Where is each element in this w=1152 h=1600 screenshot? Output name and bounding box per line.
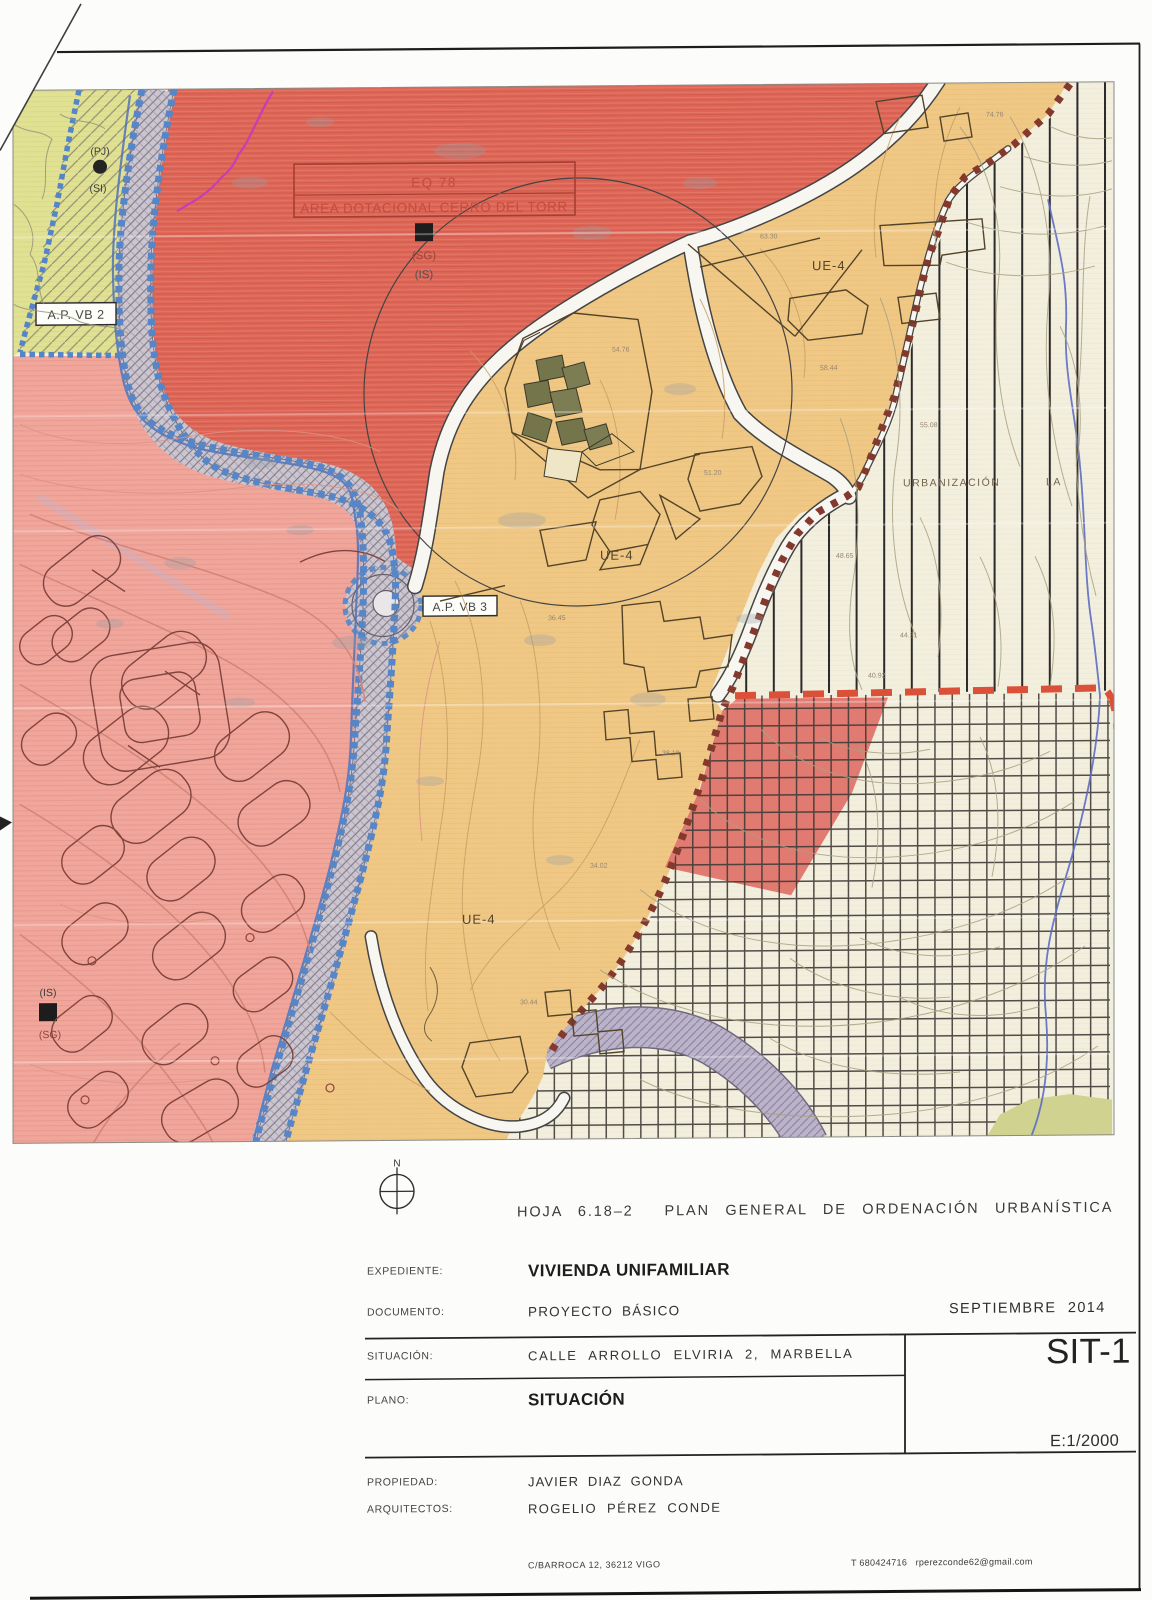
svg-text:EXPEDIENTE:: EXPEDIENTE: — [367, 1265, 443, 1278]
svg-text:PROPIEDAD:: PROPIEDAD: — [367, 1476, 438, 1489]
svg-text:ROGELIO PÉREZ CONDE: ROGELIO PÉREZ CONDE — [528, 1500, 721, 1517]
svg-text:VIVIENDA UNIFAMILIAR: VIVIENDA UNIFAMILIAR — [528, 1260, 730, 1281]
svg-text:C/BARROCA 12, 36212 VIGO: C/BARROCA 12, 36212 VIGO — [528, 1559, 661, 1570]
svg-text:SEPTIEMBRE 2014: SEPTIEMBRE 2014 — [949, 1300, 1106, 1317]
svg-text:PLANO:: PLANO: — [367, 1394, 409, 1406]
svg-text:ARQUITECTOS:: ARQUITECTOS: — [367, 1503, 453, 1516]
svg-text:SITUACIÓN: SITUACIÓN — [528, 1390, 625, 1410]
svg-text:N: N — [393, 1158, 400, 1169]
svg-text:E:1/2000: E:1/2000 — [1050, 1432, 1119, 1451]
svg-text:T 680424716 rperezconde62@gm: T 680424716 rperezconde62@gmail.com — [851, 1556, 1033, 1567]
svg-text:SIT-1: SIT-1 — [1046, 1332, 1131, 1372]
svg-text:DOCUMENTO:: DOCUMENTO: — [367, 1306, 445, 1319]
svg-text:JAVIER DIAZ GONDA: JAVIER DIAZ GONDA — [528, 1473, 684, 1489]
svg-text:SITUACIÓN:: SITUACIÓN: — [367, 1349, 433, 1363]
svg-text:CALLE ARROLLO ELVIRIA 2, MARBE: CALLE ARROLLO ELVIRIA 2, MARBELLA — [528, 1346, 854, 1364]
svg-text:PROYECTO BÁSICO: PROYECTO BÁSICO — [528, 1303, 680, 1319]
